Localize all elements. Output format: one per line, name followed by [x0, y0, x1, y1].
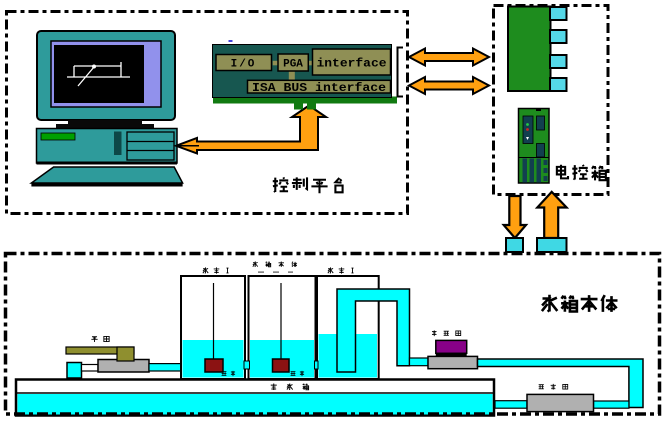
svg-text:ISA BUS interface: ISA BUS interface [252, 81, 386, 95]
svg-text:I/O: I/O [231, 59, 257, 71]
svg-text:interface: interface [317, 57, 387, 71]
svg-text:PGA: PGA [283, 59, 303, 71]
